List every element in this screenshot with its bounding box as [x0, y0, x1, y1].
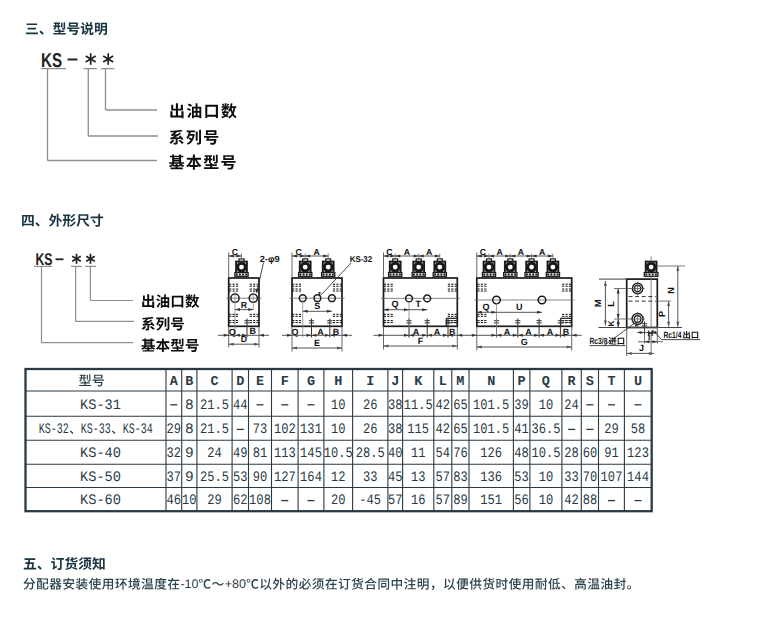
- svg-text:Q: Q: [542, 375, 550, 390]
- svg-text:L: L: [606, 301, 616, 307]
- svg-text:42: 42: [564, 493, 579, 509]
- svg-text:H: H: [334, 375, 342, 390]
- svg-text:26: 26: [363, 398, 378, 414]
- svg-text:M: M: [594, 299, 604, 307]
- svg-text:28: 28: [564, 446, 579, 462]
- svg-text:24: 24: [207, 446, 222, 462]
- svg-text:KS-40: KS-40: [80, 446, 121, 462]
- svg-text:Q: Q: [482, 302, 489, 312]
- svg-text:C: C: [232, 247, 239, 257]
- svg-text:37: 37: [167, 470, 182, 486]
- svg-text:Rc1/4: Rc1/4: [664, 330, 682, 340]
- svg-text:127: 127: [274, 470, 296, 486]
- svg-text:145: 145: [300, 446, 322, 462]
- svg-text:A: A: [539, 247, 546, 257]
- svg-text:21.5: 21.5: [200, 398, 229, 414]
- svg-text:B: B: [250, 326, 257, 336]
- svg-text:16: 16: [411, 493, 426, 509]
- svg-text:KS-31: KS-31: [80, 398, 121, 414]
- svg-text:A: A: [170, 375, 179, 390]
- svg-text:I: I: [648, 333, 650, 342]
- svg-text:39: 39: [514, 398, 529, 414]
- svg-text:G: G: [307, 375, 315, 390]
- svg-text:C: C: [386, 247, 393, 257]
- svg-text:J: J: [391, 375, 399, 390]
- svg-text:57: 57: [388, 493, 403, 509]
- svg-text:29: 29: [167, 422, 182, 438]
- svg-text:K: K: [606, 320, 616, 327]
- svg-text:Q: Q: [391, 299, 398, 309]
- svg-text:KS-60: KS-60: [80, 493, 121, 509]
- svg-text:56: 56: [514, 493, 529, 509]
- svg-text:101.5: 101.5: [473, 398, 509, 414]
- svg-text:38: 38: [388, 422, 403, 438]
- svg-text:29: 29: [207, 493, 222, 509]
- svg-text:E: E: [314, 338, 320, 348]
- svg-text:D: D: [241, 334, 247, 344]
- svg-text:60: 60: [583, 446, 598, 462]
- svg-text:88: 88: [583, 493, 598, 509]
- svg-text:44: 44: [233, 398, 248, 414]
- svg-text:KS-33: KS-33: [81, 422, 111, 438]
- svg-text:U: U: [516, 302, 523, 312]
- svg-text:P: P: [518, 375, 526, 390]
- svg-text:76: 76: [453, 446, 468, 462]
- svg-text:70: 70: [583, 470, 598, 486]
- svg-text:40: 40: [388, 446, 403, 462]
- svg-text:24: 24: [564, 398, 579, 414]
- svg-text:32: 32: [167, 446, 182, 462]
- svg-text:10: 10: [539, 470, 554, 486]
- svg-text:101.5: 101.5: [473, 422, 509, 438]
- svg-text:-10: -10: [180, 577, 198, 591]
- svg-text:9: 9: [185, 470, 194, 486]
- svg-text:25.5: 25.5: [200, 470, 229, 486]
- svg-text:A: A: [426, 247, 433, 257]
- svg-text:U: U: [634, 375, 642, 390]
- svg-text:K: K: [414, 375, 423, 390]
- svg-text:10: 10: [331, 422, 346, 438]
- svg-text:M: M: [456, 375, 464, 390]
- svg-text:N: N: [666, 287, 676, 294]
- svg-text:L: L: [439, 375, 447, 390]
- svg-text:54: 54: [436, 446, 451, 462]
- svg-text:T: T: [415, 299, 421, 309]
- svg-text:53: 53: [514, 470, 529, 486]
- svg-text:E: E: [256, 375, 264, 390]
- svg-text:P: P: [657, 311, 667, 317]
- svg-text:57: 57: [436, 470, 451, 486]
- svg-text:65: 65: [453, 398, 468, 414]
- svg-text:J: J: [639, 343, 644, 353]
- svg-text:A: A: [496, 247, 503, 257]
- svg-text:73: 73: [253, 422, 268, 438]
- svg-text:A: A: [314, 247, 321, 257]
- svg-text:R: R: [568, 375, 577, 390]
- svg-text:R: R: [241, 300, 248, 310]
- svg-text:81: 81: [253, 446, 268, 462]
- svg-text:65: 65: [453, 422, 468, 438]
- svg-text:107: 107: [601, 470, 623, 486]
- svg-text:29: 29: [604, 422, 619, 438]
- svg-text:123: 123: [627, 446, 649, 462]
- svg-text:KS: KS: [36, 250, 53, 269]
- svg-text:41: 41: [514, 422, 529, 438]
- svg-text:36.5: 36.5: [531, 422, 560, 438]
- svg-text:2-φ9: 2-φ9: [260, 254, 280, 264]
- svg-text:48: 48: [514, 446, 529, 462]
- svg-text:F: F: [281, 375, 289, 390]
- svg-text:8: 8: [185, 422, 194, 438]
- svg-text:42: 42: [436, 422, 451, 438]
- svg-text:N: N: [487, 375, 495, 390]
- svg-text:38: 38: [388, 398, 403, 414]
- svg-text:KS-32: KS-32: [350, 254, 373, 264]
- svg-text:89: 89: [453, 493, 468, 509]
- svg-text:20: 20: [331, 493, 346, 509]
- svg-text:D: D: [236, 375, 244, 390]
- svg-text:10.5: 10.5: [324, 446, 353, 462]
- svg-text:49: 49: [233, 446, 248, 462]
- svg-text:9: 9: [185, 446, 194, 462]
- svg-text:S: S: [314, 301, 320, 311]
- svg-text:B: B: [185, 375, 193, 390]
- svg-text:10: 10: [539, 493, 554, 509]
- svg-text:10.5: 10.5: [531, 446, 560, 462]
- svg-text:C: C: [480, 247, 487, 257]
- svg-text:T: T: [607, 375, 615, 390]
- svg-text:10: 10: [182, 493, 197, 509]
- svg-text:A: A: [518, 247, 525, 257]
- svg-text:53: 53: [233, 470, 248, 486]
- svg-text:+80: +80: [225, 577, 246, 591]
- svg-text:-45: -45: [359, 493, 381, 509]
- svg-text:46: 46: [167, 493, 182, 509]
- svg-text:115: 115: [407, 422, 429, 438]
- svg-text:10: 10: [331, 398, 346, 414]
- svg-text:26: 26: [363, 422, 378, 438]
- svg-text:108: 108: [249, 493, 271, 509]
- svg-text:113: 113: [274, 446, 296, 462]
- svg-text:164: 164: [300, 470, 322, 486]
- svg-text:131: 131: [300, 422, 322, 438]
- svg-text:28.5: 28.5: [356, 446, 385, 462]
- svg-text:83: 83: [453, 470, 468, 486]
- svg-text:11: 11: [411, 446, 426, 462]
- svg-text:136: 136: [480, 470, 502, 486]
- svg-text:C: C: [295, 247, 302, 257]
- svg-text:10: 10: [539, 398, 554, 414]
- svg-text:KS-50: KS-50: [80, 470, 121, 486]
- svg-text:21.5: 21.5: [200, 422, 229, 438]
- svg-text:33: 33: [564, 470, 579, 486]
- svg-text:KS-34: KS-34: [123, 422, 153, 438]
- svg-text:11.5: 11.5: [404, 398, 433, 414]
- svg-text:KS-32: KS-32: [39, 422, 69, 438]
- svg-text:8: 8: [185, 398, 194, 414]
- svg-text:C: C: [210, 375, 218, 390]
- svg-text:58: 58: [631, 422, 646, 438]
- svg-text:13: 13: [411, 470, 426, 486]
- svg-text:126: 126: [480, 446, 502, 462]
- svg-text:42: 42: [436, 398, 451, 414]
- svg-text:F: F: [418, 336, 424, 346]
- svg-text:144: 144: [627, 470, 649, 486]
- svg-text:91: 91: [604, 446, 619, 462]
- svg-text:A: A: [404, 247, 411, 257]
- svg-text:33: 33: [363, 470, 378, 486]
- svg-text:45: 45: [388, 470, 403, 486]
- svg-text:57: 57: [436, 493, 451, 509]
- svg-text:I: I: [366, 375, 374, 390]
- svg-text:102: 102: [274, 422, 296, 438]
- svg-text:G: G: [521, 337, 528, 347]
- svg-text:12: 12: [331, 470, 346, 486]
- svg-text:151: 151: [480, 493, 502, 509]
- svg-text:62: 62: [233, 493, 248, 509]
- svg-text:90: 90: [253, 470, 268, 486]
- svg-text:S: S: [586, 375, 594, 390]
